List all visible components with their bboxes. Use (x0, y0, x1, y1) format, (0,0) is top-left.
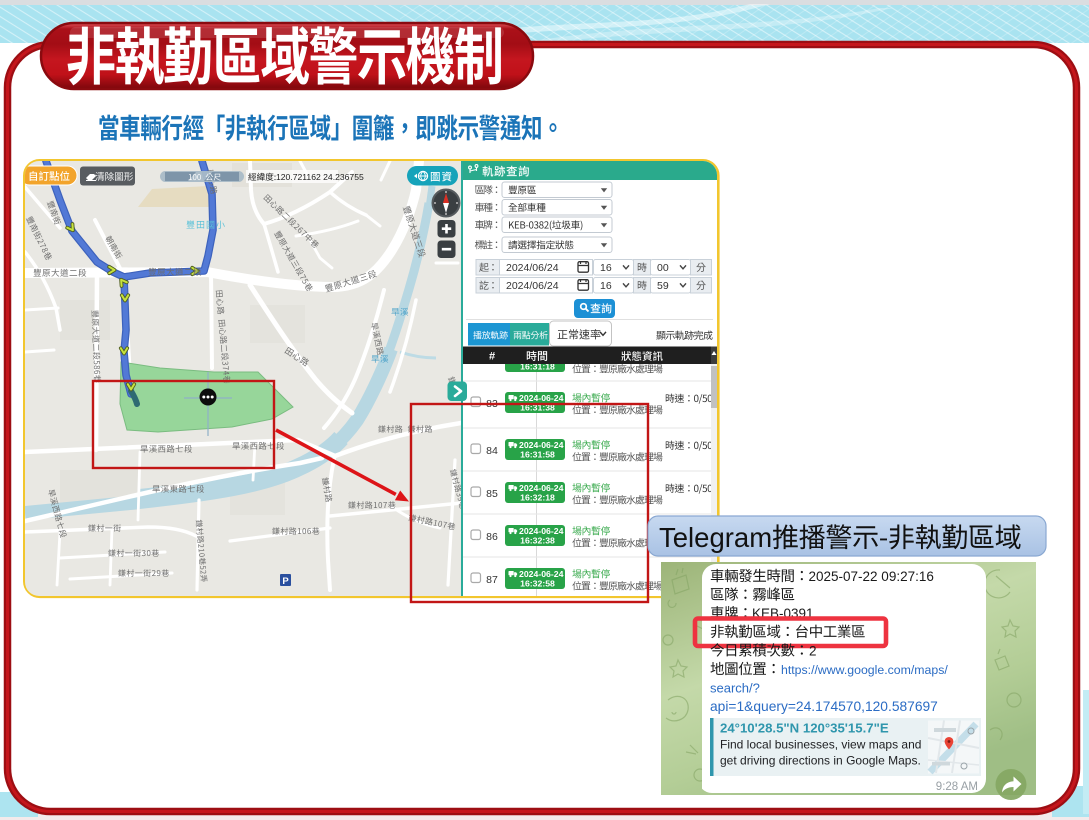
svg-text:16:32:58: 16:32:58 (520, 579, 555, 589)
svg-text:api=1&query=24.174570,120.5876: api=1&query=24.174570,120.587697 (710, 699, 938, 714)
svg-text:get driving directions in Goog: get driving directions in Google Maps. (720, 754, 921, 768)
svg-text:00: 00 (657, 262, 669, 274)
svg-text:16: 16 (600, 262, 612, 274)
svg-text:2024-06-24: 2024-06-24 (519, 483, 564, 493)
svg-text:2024-06-24: 2024-06-24 (519, 526, 564, 536)
svg-text:16:32:18: 16:32:18 (520, 493, 555, 503)
svg-text:24°10'28.5"N 120°35'15.7"E: 24°10'28.5"N 120°35'15.7"E (720, 721, 889, 736)
svg-text:86: 86 (486, 531, 498, 543)
svg-text:2025-07-22 09:27:16: 2025-07-22 09:27:16 (809, 569, 934, 584)
svg-text:120.721162 24.236755: 120.721162 24.236755 (276, 172, 364, 182)
svg-text:2024/06/24: 2024/06/24 (506, 262, 559, 274)
svg-text:87: 87 (486, 574, 498, 586)
svg-text:16:32:38: 16:32:38 (520, 536, 555, 546)
svg-text:Find local businesses, view ma: Find local businesses, view maps and (720, 738, 921, 752)
svg-text:2024-06-24: 2024-06-24 (519, 440, 564, 450)
svg-text:2024-06-24: 2024-06-24 (519, 569, 564, 579)
svg-text:59: 59 (657, 280, 669, 292)
svg-text:84: 84 (486, 445, 498, 457)
svg-text:9:28 AM: 9:28 AM (936, 781, 978, 793)
svg-text:85: 85 (486, 488, 498, 500)
svg-text:#: # (489, 351, 495, 363)
svg-text:search/?: search/? (710, 681, 760, 696)
svg-text:2024-06-24: 2024-06-24 (519, 393, 564, 403)
svg-text:2: 2 (809, 643, 817, 658)
svg-text:16:31:58: 16:31:58 (520, 450, 555, 460)
svg-text:Telegram: Telegram (659, 522, 772, 553)
svg-text:P: P (282, 576, 289, 587)
svg-text:https://www.google.com/maps/: https://www.google.com/maps/ (781, 663, 948, 677)
svg-text:2024/06/24: 2024/06/24 (506, 280, 559, 292)
svg-text:16: 16 (600, 280, 612, 292)
